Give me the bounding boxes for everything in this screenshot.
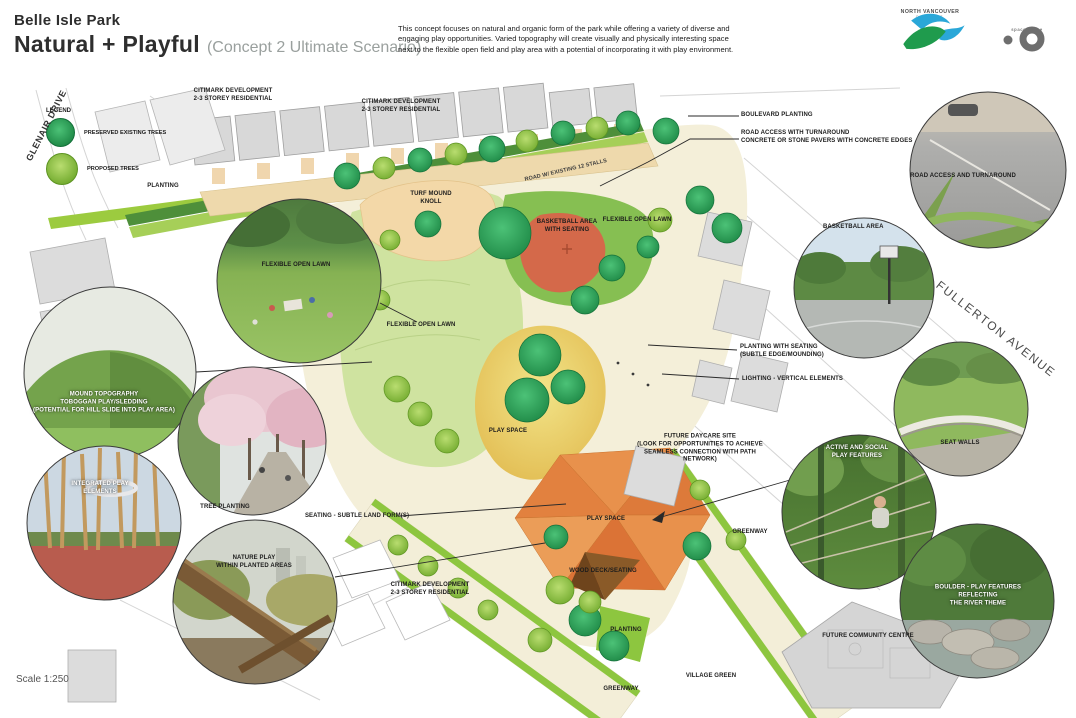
map-label-flex-lawn-east: FLEXIBLE OPEN LAWN [603,217,672,225]
concept-subtitle: (Concept 2 Ultimate Scenario) [207,39,421,56]
legend-item-preserved: PRESERVED EXISTING TREES [46,118,166,147]
map-label-turf-mound: TURF MOUND KNOLL [410,191,451,207]
legend-label: PRESERVED EXISTING TREES [84,130,166,136]
concept-board: Belle Isle Park Natural + Playful(Concep… [0,0,1076,718]
photo-inset-basketball [794,218,934,360]
design-firm-logo: space2place [996,26,1058,32]
map-label-planting-west: PLANTING [147,183,178,191]
annotation-boulevard-planting: BOULEVARD PLANTING [741,112,813,120]
legend-title: LEGEND [46,108,166,114]
dot-ring-icon [996,26,1050,54]
legend: LEGEND PRESERVED EXISTING TREES PROPOSED… [46,108,166,191]
map-label-seating-landform: SEATING - SUBTLE LAND FORM(S) [305,513,409,521]
caption-flexible-open-lawn: FLEXIBLE OPEN LAWN [262,262,331,270]
map-label-citimark-1: CITIMARK DEVELOPMENT 2-3 STOREY RESIDENT… [194,88,273,104]
photo-inset-road-access [910,92,1070,252]
scale-note: Scale 1:250 [16,674,69,685]
map-label-play-space-mound: PLAY SPACE [489,428,527,436]
legend-label: PROPOSED TREES [87,166,139,172]
map-label-greenway-south: GREENWAY [603,686,638,694]
park-name: Belle Isle Park [14,12,120,29]
annotation-daycare: FUTURE DAYCARE SITE (LOOK FOR OPPORTUNIT… [637,433,763,464]
proposed-tree-icon [46,153,78,185]
photo-inset-nature-play [168,520,354,686]
map-label-planting-south: PLANTING [610,627,641,635]
concept-title: Natural + Playful [14,31,200,57]
map-label-community-centre: FUTURE COMMUNITY CENTRE [822,633,914,641]
map-label-basketball-seating: BASKETBALL AREA WITH SEATING [537,219,598,235]
caption-road-access: ROAD ACCESS AND TURNAROUND [910,173,1016,181]
caption-boulder-play: BOULDER - PLAY FEATURES REFLECTING THE R… [935,584,1021,607]
caption-seat-walls: SEAT WALLS [940,440,979,448]
map-label-wood-deck: WOOD DECK/SEATING [569,568,637,576]
annotation-basketball-area: BASKETBALL AREA [823,224,884,232]
photo-inset-seat-walls [894,342,1034,477]
caption-tree-planting: TREE PLANTING [200,504,250,512]
caption-active-play: ACTIVE AND SOCIAL PLAY FEATURES [826,445,888,461]
map-label-greenway-east: GREENWAY [732,529,767,537]
caption-mound-topography: MOUND TOPOGRAPHY TOBOGGAN PLAY/SLEDDING … [33,391,175,414]
map-label-flex-lawn-west: FLEXIBLE OPEN LAWN [387,322,456,330]
annotation-planting-seating: PLANTING WITH SEATING (SUBTLE EDGE/MOUND… [740,344,824,360]
map-label-play-space-orange: PLAY SPACE [587,516,625,524]
concept-title-line: Natural + Playful(Concept 2 Ultimate Sce… [14,31,421,58]
caption-nature-play: NATURE PLAY WITHIN PLANTED AREAS [216,555,292,571]
photo-inset-play-poles [27,446,182,601]
map-label-citimark-2: CITIMARK DEVELOPMENT 2-3 STOREY RESIDENT… [362,99,441,115]
annotation-lighting: LIGHTING - VERTICAL ELEMENTS [742,376,843,384]
concept-description: This concept focuses on natural and orga… [398,24,744,55]
caption-integrated-play: INTEGRATED PLAY ELEMENTS [71,481,128,497]
map-label-village-green: VILLAGE GREEN [686,673,736,681]
map-label-citimark-3: CITIMARK DEVELOPMENT 2-3 STOREY RESIDENT… [391,582,470,598]
north-vancouver-district-logo: NORTH VANCOUVER DISTRICT [892,8,968,19]
annotation-road-access: ROAD ACCESS WITH TURNAROUND CONCRETE OR … [741,130,912,146]
eagle-icon [892,8,968,52]
legend-item-proposed: PROPOSED TREES [46,153,166,185]
